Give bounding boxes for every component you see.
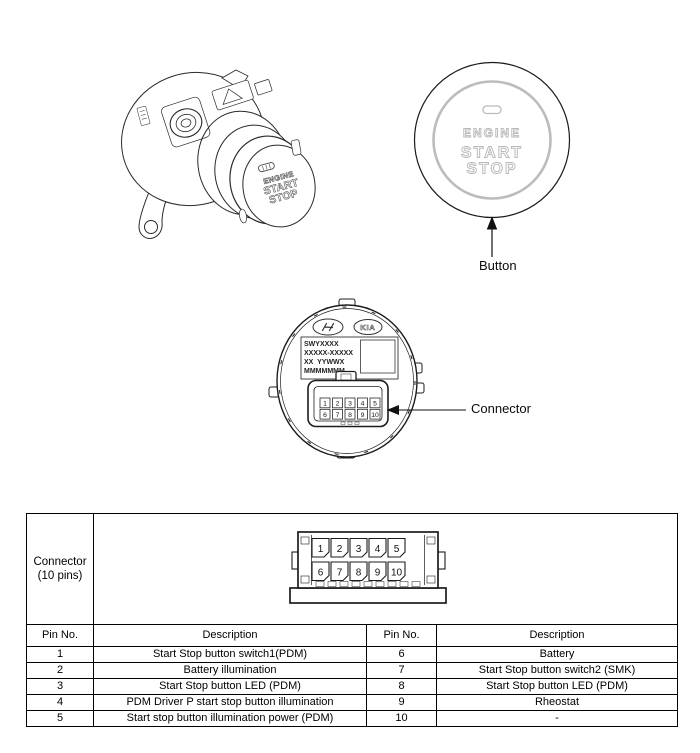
connector-diagram-cell: 12 34 5 67 89 10 [94,514,678,625]
pin-desc-cell: Start Stop button LED (PDM) [437,679,678,695]
pin-row-4-9: 4 PDM Driver P start stop button illumin… [27,695,678,711]
svg-text:6: 6 [323,412,327,419]
pin-desc-cell: Battery illumination [94,663,367,679]
pin-desc-cell: Start stop button illumination power (PD… [94,711,367,727]
svg-text:8: 8 [356,568,362,579]
button-outer-ring [415,63,570,218]
manual-page: ENGINE START STOP ENGINE START STOP Butt… [0,0,700,753]
svg-text:2: 2 [336,401,340,408]
connector-cell-line1: Connector [27,555,93,569]
svg-text:5: 5 [373,401,377,408]
pin-row-2-7: 2 Battery illumination 7 Start Stop butt… [27,663,678,679]
svg-text:10: 10 [391,568,403,579]
connector-pins-cell: Connector (10 pins) [27,514,94,625]
svg-text:1: 1 [318,544,324,555]
svg-text:9: 9 [375,568,381,579]
pin-number-cell: 5 [27,711,94,727]
pin-number-cell: 2 [27,663,94,679]
svg-text:7: 7 [337,568,343,579]
back-view-figure: KIA SWYXXXX XXXXX-XXXXX XX YYWWX MMMMMMM [268,296,568,468]
header-desc-right: Description [437,625,678,647]
pin-number-cell: 1 [27,647,94,663]
svg-text:4: 4 [375,544,381,555]
button-front-figure: ENGINE START STOP [405,55,590,280]
connector-diagram-row: Connector (10 pins) [27,514,678,625]
pin-table-header-row: Pin No. Description Pin No. Description [27,625,678,647]
pin-number-cell: 3 [27,679,94,695]
pin-desc-cell: - [437,711,678,727]
pin-desc-cell: Start Stop button switch2 (SMK) [437,663,678,679]
button-stop-text: STOP [466,161,517,178]
connector-diagram: 12 34 5 67 89 10 [287,527,451,607]
pin-number-cell: 9 [367,695,437,711]
assembly-figure: ENGINE START STOP [105,48,340,248]
pin-number-cell: 4 [27,695,94,711]
header-pin-no-right: Pin No. [367,625,437,647]
pin-desc-cell: Start Stop button switch1(PDM) [94,647,367,663]
pin-desc-cell: Rheostat [437,695,678,711]
svg-text:4: 4 [361,401,365,408]
part-label-line3: XX YYWWX [304,359,345,366]
svg-text:9: 9 [361,412,365,419]
part-label-line1: SWYXXXX [304,341,339,348]
kia-logo-text: KIA [360,323,375,332]
svg-text:5: 5 [394,544,400,555]
header-pin-no-left: Pin No. [27,625,94,647]
part-label-line2: XXXXX-XXXXX [304,350,353,357]
svg-text:2: 2 [337,544,343,555]
svg-text:3: 3 [356,544,362,555]
button-start-text: START [461,145,523,162]
pin-desc-cell: Battery [437,647,678,663]
pin-row-3-8: 3 Start Stop button LED (PDM) 8 Start St… [27,679,678,695]
svg-text:6: 6 [318,568,324,579]
pin-number-cell: 6 [367,647,437,663]
pin-number-cell: 8 [367,679,437,695]
svg-text:1: 1 [323,401,327,408]
button-engine-text: ENGINE [463,126,521,140]
pin-row-1-6: 1 Start Stop button switch1(PDM) 6 Batte… [27,647,678,663]
button-callout-label: Button [479,259,517,272]
header-desc-left: Description [94,625,367,647]
back-connector: 12 34 5 67 89 10 [308,372,388,427]
connector-callout-label: Connector [471,402,531,415]
pin-row-5-10: 5 Start stop button illumination power (… [27,711,678,727]
pin-number-cell: 7 [367,663,437,679]
svg-text:3: 3 [348,401,352,408]
button-callout-arrow [488,218,497,258]
svg-text:7: 7 [336,412,340,419]
pin-desc-cell: PDM Driver P start stop button illuminat… [94,695,367,711]
connector-pin-table: Connector (10 pins) [26,513,678,727]
svg-text:10: 10 [371,412,379,419]
pin-number-cell: 10 [367,711,437,727]
pin-desc-cell: Start Stop button LED (PDM) [94,679,367,695]
svg-text:8: 8 [348,412,352,419]
connector-cell-line2: (10 pins) [27,569,93,583]
